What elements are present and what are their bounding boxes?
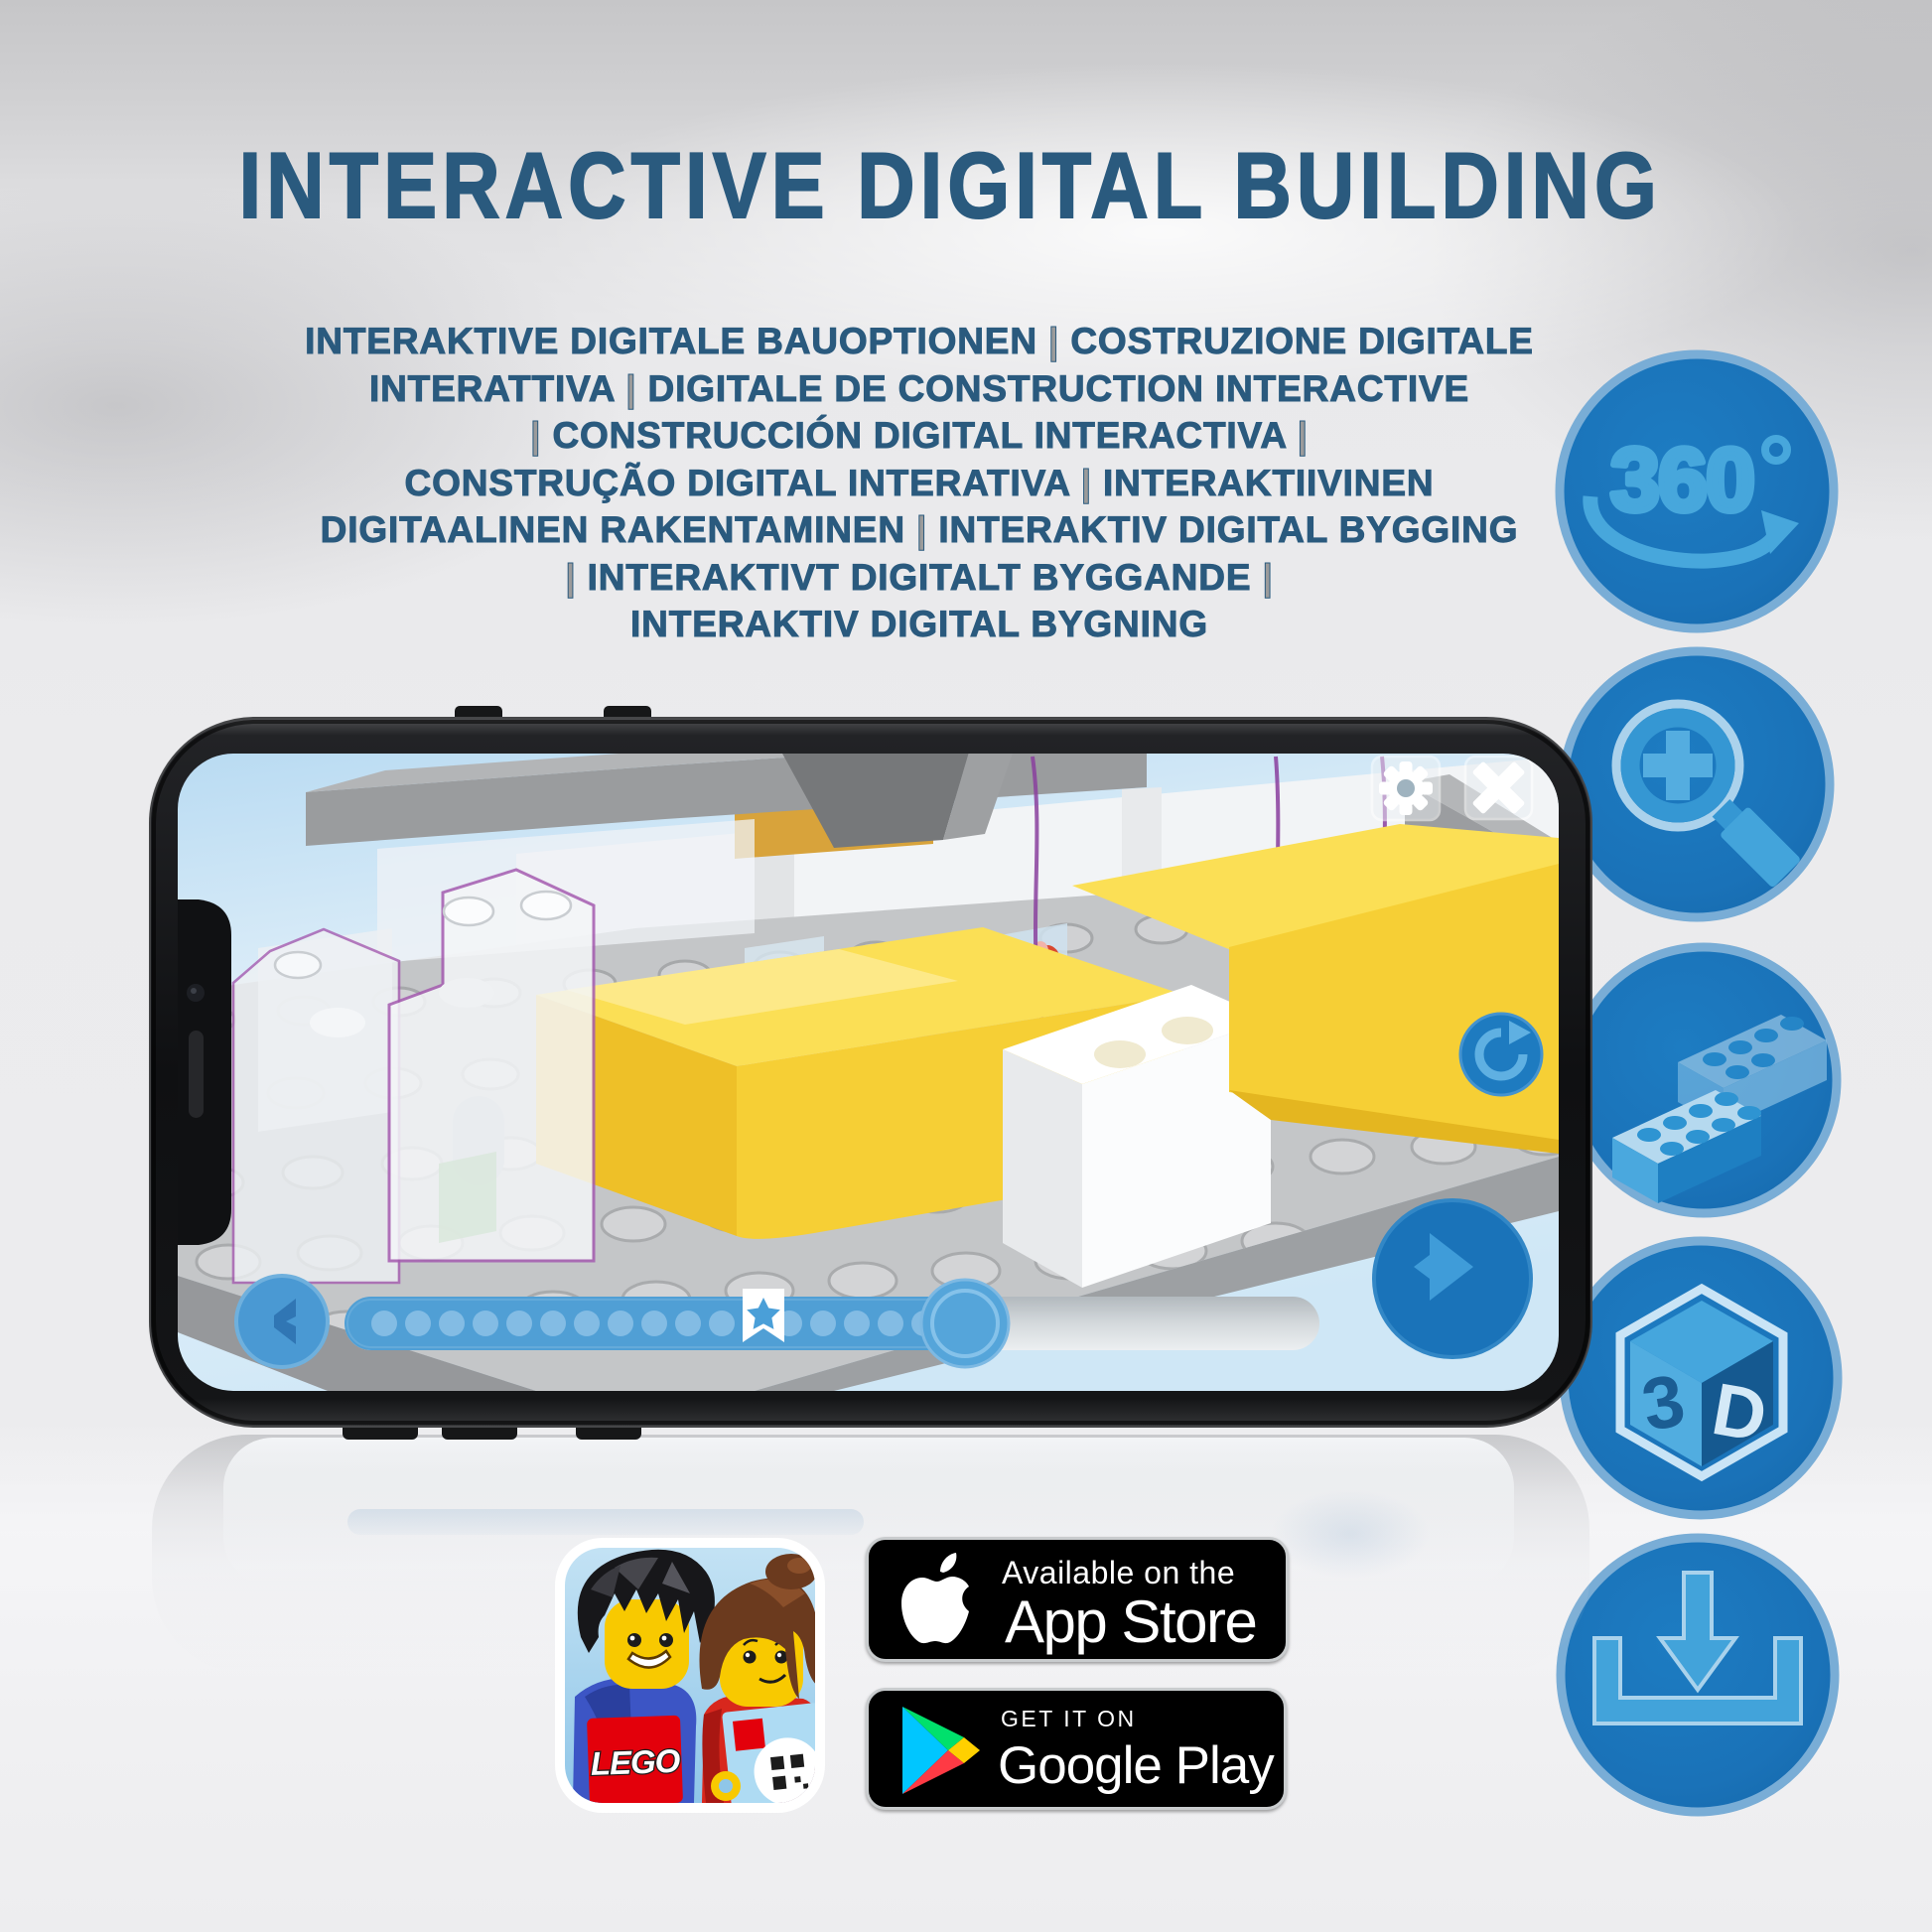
svg-text:360: 360 <box>1610 431 1753 530</box>
svg-text:LEGO: LEGO <box>590 1742 681 1782</box>
